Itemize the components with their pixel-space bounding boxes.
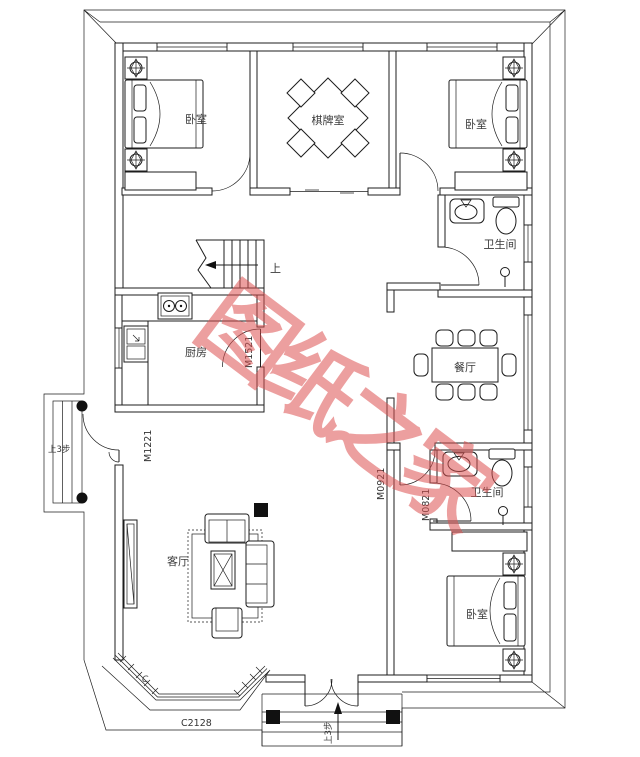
window-right-dining xyxy=(524,315,532,430)
floor-drain xyxy=(499,507,508,526)
window-right-bath xyxy=(524,225,532,262)
window-right-corridor xyxy=(524,467,532,507)
wardrobe xyxy=(452,532,527,551)
nightstand-lamp xyxy=(503,149,525,171)
floor-plan-drawing: 卧室 棋牌室 卧室 卫生间 厨房 餐厅 卫生间 卧室 客厅 M1221 M152… xyxy=(0,0,640,757)
steps-left-label: 上3步 xyxy=(48,445,70,455)
nightstand-lamp xyxy=(125,57,147,79)
sink xyxy=(450,199,484,223)
room-label-bedroom-tl: 卧室 xyxy=(185,112,207,126)
room-label-bathroom-top: 卫生间 xyxy=(484,237,517,251)
nightstand-lamp xyxy=(503,553,525,575)
wardrobe xyxy=(125,172,196,190)
steps-arrow xyxy=(334,702,342,714)
room-label-dining: 餐厅 xyxy=(454,360,476,374)
toilet xyxy=(493,197,519,234)
nightstand-lamp xyxy=(503,649,525,671)
wardrobe xyxy=(455,172,527,190)
floor-drain xyxy=(501,268,510,288)
porch-column xyxy=(77,401,88,412)
nightstand-lamp xyxy=(125,149,147,171)
stove xyxy=(158,293,192,319)
window-top-middle xyxy=(293,43,363,51)
armchair xyxy=(212,608,242,638)
floor-plan: 卧室 棋牌室 卧室 卫生间 厨房 餐厅 卫生间 卧室 客厅 M1221 M152… xyxy=(0,0,640,757)
sofa-two-seat xyxy=(205,514,249,543)
door-main-left-entry xyxy=(83,414,119,462)
door-bedroom-top-left xyxy=(212,153,250,191)
porch-column xyxy=(386,710,400,724)
door-bedroom-top-right xyxy=(400,153,438,191)
room-label-bedroom-br: 卧室 xyxy=(466,607,488,621)
window-code-c2128: C2128 xyxy=(181,718,212,729)
door-bathroom-top xyxy=(441,247,479,285)
corner-mark-c: C xyxy=(142,675,149,685)
nightstand-lamp xyxy=(503,57,525,79)
room-label-game-room: 棋牌室 xyxy=(312,113,345,127)
kitchen-sink xyxy=(124,326,148,362)
bay-window xyxy=(113,653,269,700)
door-code-m1221: M1221 xyxy=(143,430,154,462)
room-label-bedroom-tr: 卧室 xyxy=(465,117,487,131)
window-bottom-bedroom xyxy=(427,675,500,682)
porch-column xyxy=(266,710,280,724)
room-label-living: 客厅 xyxy=(167,554,189,568)
sofa-three-seat xyxy=(246,541,274,607)
tv-cabinet xyxy=(124,520,137,608)
column xyxy=(254,503,268,517)
stairs-up-label: 上 xyxy=(270,262,281,275)
window-top-left xyxy=(157,43,227,51)
living-room-set xyxy=(124,503,274,638)
steps-bottom-label: 上3步 xyxy=(324,722,334,744)
porch-column xyxy=(77,493,88,504)
door-double-entry xyxy=(305,679,358,706)
window-top-right xyxy=(427,43,497,51)
stairs-arrow xyxy=(205,261,216,269)
coffee-table xyxy=(211,551,235,589)
bed-top-right xyxy=(449,80,527,148)
